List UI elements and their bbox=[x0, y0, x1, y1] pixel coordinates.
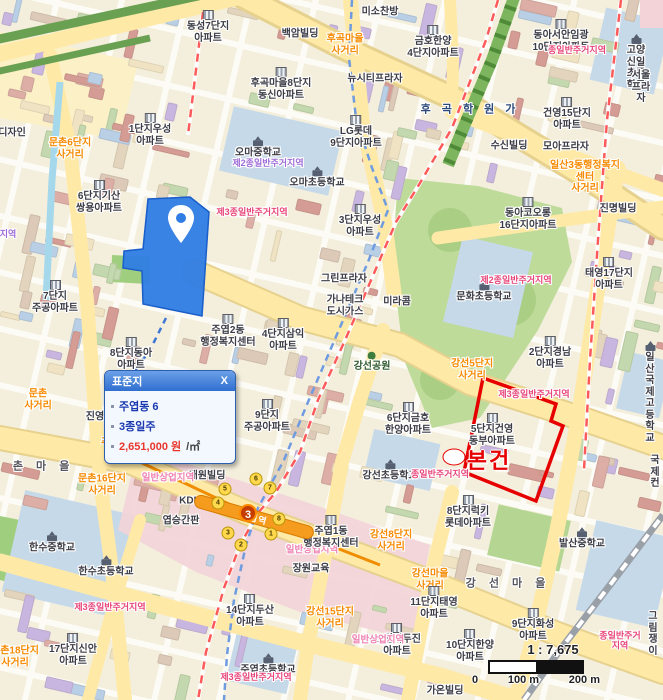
map-label: 강선초등학교 bbox=[362, 458, 417, 482]
building-icon bbox=[465, 629, 476, 639]
exit-badge: 7 bbox=[264, 482, 277, 495]
school-icon bbox=[577, 531, 587, 537]
building-icon bbox=[325, 515, 336, 525]
building-icon bbox=[278, 318, 289, 328]
map-label: 8단지럭키 롯데아파트 bbox=[445, 495, 491, 529]
map-canvas[interactable]: 동성7단지 아파트미소찬방백암빌딩금호한양 4단지아파트동아서안임광 10단지아… bbox=[0, 0, 663, 700]
map-label: 태영17단지 아파트 bbox=[585, 257, 633, 291]
bullet-icon bbox=[111, 445, 114, 448]
school-icon bbox=[253, 140, 263, 146]
map-label: 제3종일반주거지역 bbox=[220, 672, 291, 682]
park-icon bbox=[368, 352, 376, 360]
building-icon bbox=[528, 608, 539, 618]
subway-line3-badge[interactable]: 3 bbox=[239, 504, 257, 522]
map-label: 7단지 주공아파트 bbox=[32, 280, 78, 314]
map-label: 종일반주거지역 bbox=[411, 469, 469, 479]
map-label: 강선15단지 사거리 bbox=[306, 607, 354, 630]
map-label: 9단지화성 아파트 bbox=[512, 608, 554, 642]
school-icon bbox=[385, 463, 395, 469]
building-icon bbox=[429, 586, 440, 596]
building-icon bbox=[126, 337, 137, 347]
building-icon bbox=[262, 399, 273, 409]
building-icon bbox=[403, 402, 414, 412]
exit-badge: 3 bbox=[222, 527, 235, 540]
map-label: 가나테크 도시가스 bbox=[327, 295, 364, 318]
building-icon bbox=[145, 113, 156, 123]
map-label: 강 선 마 을 bbox=[466, 578, 551, 591]
map-label: 국제컨 bbox=[650, 455, 659, 490]
map-label: 제3종일반주거지역 bbox=[498, 389, 569, 399]
exit-badge: 1 bbox=[265, 528, 278, 541]
map-label: 후곡마을 사거리 bbox=[327, 34, 364, 57]
map-label: 발산중학교 bbox=[559, 526, 605, 550]
building-icon bbox=[392, 623, 403, 633]
map-scale: 1 : 7,675 0 100 m 200 m bbox=[468, 642, 638, 686]
map-label: 2단지경남 아파트 bbox=[529, 336, 571, 370]
building-icon bbox=[222, 314, 233, 324]
school-icon bbox=[645, 345, 655, 351]
building-icon bbox=[428, 25, 439, 35]
map-label: 제3종일반주거지역 bbox=[216, 207, 287, 217]
scale-ratio: 1 : 7,675 bbox=[468, 642, 638, 657]
building-icon bbox=[487, 413, 498, 423]
map-label: 건영15단지 아파트 bbox=[543, 97, 591, 131]
map-label: 9단지 주공아파트 bbox=[244, 399, 290, 433]
map-label: 6단지기산 쌍용아파트 bbox=[76, 180, 122, 214]
map-label: 6단지금호 한양아파트 bbox=[385, 402, 431, 436]
map-label: 문촌18단지 사거리 bbox=[0, 646, 39, 669]
exit-badge: 6 bbox=[250, 473, 263, 486]
building-icon bbox=[463, 495, 474, 505]
map-label: 오마중학교 bbox=[235, 135, 281, 159]
scale-bar-white bbox=[490, 662, 536, 672]
exit-badge: 4 bbox=[212, 497, 225, 510]
standard-lot-popup[interactable]: 표준지 X 주엽동 6 3종일주 2,651,000 원 /㎡ bbox=[104, 370, 236, 464]
map-label: 종일반주거지역 bbox=[548, 45, 606, 55]
map-label: 강선공원 bbox=[354, 352, 391, 373]
map-label: 금호한양 4단지아파트 bbox=[407, 25, 459, 59]
popup-title: 표준지 bbox=[112, 373, 142, 389]
school-icon bbox=[631, 38, 641, 44]
labels-layer: 동성7단지 아파트미소찬방백암빌딩금호한양 4단지아파트동아서안임광 10단지아… bbox=[0, 0, 663, 700]
map-label: 미라콤 bbox=[383, 296, 411, 308]
building-icon bbox=[562, 97, 573, 107]
map-label: 가온빌딩 bbox=[427, 685, 464, 697]
map-label: 문촌6단지 사거리 bbox=[49, 138, 91, 161]
map-label: 그린프라자 bbox=[321, 273, 367, 285]
map-label: 강선5단지 사거리 bbox=[451, 359, 493, 382]
map-label: 한수중학교 bbox=[29, 530, 75, 554]
map-label: 동아코오롱 16단지아파트 bbox=[499, 197, 556, 231]
building-icon bbox=[355, 204, 366, 214]
bullet-icon bbox=[111, 405, 114, 408]
map-label: 후 곡 학 원 가 bbox=[421, 104, 520, 117]
map-label: 17단지신안 아파트 bbox=[49, 633, 97, 667]
map-label: 동성7단지 아파트 bbox=[187, 10, 229, 44]
building-icon bbox=[94, 180, 105, 190]
map-label: 8단지동아 아파트 bbox=[110, 337, 152, 371]
map-label: 3단지우성 아파트 bbox=[339, 204, 381, 238]
map-label: 뉴시티프라자 bbox=[347, 73, 402, 85]
map-label: 진명빌딩 bbox=[600, 203, 637, 215]
school-icon bbox=[312, 170, 322, 176]
popup-row-price: 2,651,000 원 /㎡ bbox=[111, 436, 229, 456]
scale-bar bbox=[488, 660, 584, 674]
school-icon bbox=[101, 559, 111, 565]
map-label: 오마초등학교 bbox=[289, 165, 344, 189]
map-label: 그림쟁이 bbox=[648, 611, 658, 657]
map-label: 장원교육 bbox=[293, 563, 330, 575]
building-icon bbox=[604, 257, 615, 267]
popup-body: 주엽동 6 3종일주 2,651,000 원 /㎡ bbox=[105, 391, 235, 463]
building-icon bbox=[556, 19, 567, 29]
popup-header: 표준지 X bbox=[105, 371, 235, 391]
map-label: 1단지우성 아파트 bbox=[129, 113, 171, 147]
map-label: 일반상업지역 bbox=[142, 474, 194, 485]
building-icon bbox=[245, 594, 256, 604]
map-label: 미소찬방 bbox=[362, 6, 399, 18]
map-label: 14단지두산 아파트 bbox=[226, 594, 274, 628]
map-label: 모아프라자 bbox=[543, 141, 589, 153]
subject-label: 본건 bbox=[467, 443, 511, 475]
building-icon bbox=[203, 10, 214, 20]
map-label: 4단지삼익 아파트 bbox=[262, 318, 304, 352]
map-label: 지역 bbox=[0, 229, 16, 239]
school-icon bbox=[263, 657, 273, 663]
map-label: 강선8단지 사거리 bbox=[370, 530, 412, 553]
building-icon bbox=[68, 633, 79, 643]
map-label: 일산3동행정복지센터 사거리 bbox=[546, 160, 624, 195]
map-label: 일산국제 고등학교 bbox=[644, 340, 657, 444]
map-label: 후곡마을8단지 동신아파트 bbox=[251, 67, 312, 101]
map-label: 제2종일반주거지역 bbox=[480, 275, 551, 285]
building-icon bbox=[545, 336, 556, 346]
popup-close-button[interactable]: X bbox=[221, 375, 228, 387]
popup-row-address: 주엽동 6 bbox=[111, 396, 229, 416]
map-label: 수신빌딩 bbox=[491, 140, 528, 152]
map-label: 서울프라자 bbox=[630, 70, 652, 105]
bullet-icon bbox=[111, 425, 114, 428]
map-label: 디자인 bbox=[0, 127, 26, 139]
building-icon bbox=[275, 67, 286, 77]
map-label: 한수초등학교 bbox=[78, 554, 133, 578]
building-icon bbox=[351, 115, 362, 125]
exit-badge: 8 bbox=[273, 513, 286, 526]
popup-row-zoning: 3종일주 bbox=[111, 416, 229, 436]
map-label: 일반상업지역 bbox=[352, 636, 404, 647]
school-icon bbox=[47, 535, 57, 541]
map-label: 제3종일반주거지역 bbox=[74, 602, 145, 612]
building-icon bbox=[50, 280, 61, 290]
scale-ticks: 0 100 m 200 m bbox=[472, 674, 600, 686]
map-label: 문촌 사거리 bbox=[24, 389, 52, 412]
map-label: 백암빌딩 bbox=[282, 28, 319, 40]
map-label: 문촌16단지 사거리 bbox=[78, 474, 126, 497]
map-label: LG롯데 9단지아파트 bbox=[330, 115, 382, 149]
map-label: 제2종일반주거지역 bbox=[232, 158, 303, 168]
map-label: 진영 bbox=[86, 411, 104, 423]
exit-badge: 2 bbox=[235, 539, 248, 552]
map-label: 5단지건영 동부아파트 bbox=[469, 413, 515, 447]
exit-badge: 5 bbox=[219, 483, 232, 496]
scale-bar-black bbox=[536, 662, 582, 672]
building-icon bbox=[523, 197, 534, 207]
map-label: 주엽2동 행정복지센터 bbox=[200, 314, 255, 348]
map-label: 문 촌 마 을 bbox=[0, 461, 74, 474]
map-label: 엽승간판 bbox=[163, 515, 200, 527]
map-label: 11단지태영 아파트 bbox=[410, 586, 457, 620]
